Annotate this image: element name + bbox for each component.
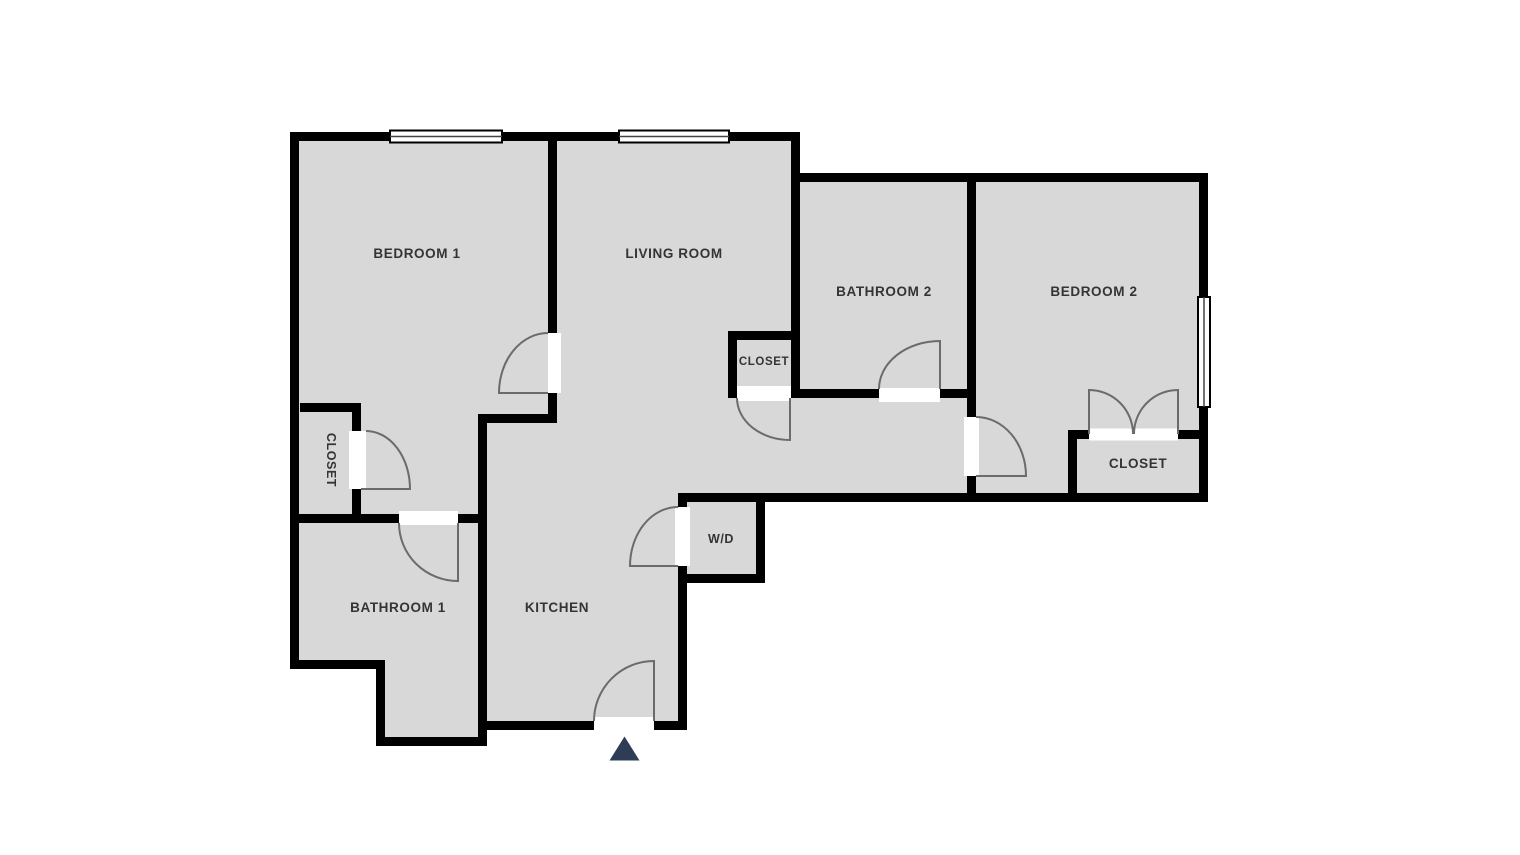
svg-text:CLOSET: CLOSET	[324, 433, 338, 487]
svg-text:KITCHEN: KITCHEN	[525, 600, 589, 615]
svg-text:BEDROOM 1: BEDROOM 1	[373, 246, 460, 261]
svg-text:BEDROOM 2: BEDROOM 2	[1050, 284, 1137, 299]
svg-text:BATHROOM 2: BATHROOM 2	[836, 284, 932, 299]
svg-text:BATHROOM 1: BATHROOM 1	[350, 600, 446, 615]
svg-text:W/D: W/D	[708, 532, 734, 546]
svg-text:CLOSET: CLOSET	[1109, 456, 1168, 471]
svg-text:LIVING ROOM: LIVING ROOM	[625, 246, 722, 261]
svg-text:CLOSET: CLOSET	[739, 356, 789, 368]
